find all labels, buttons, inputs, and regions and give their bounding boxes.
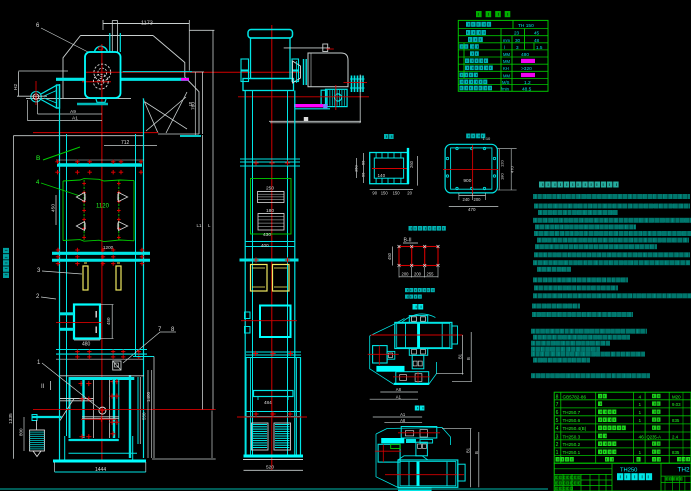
svg-text:120: 120 (500, 160, 505, 167)
svg-text:140: 140 (378, 173, 386, 178)
svg-text:484: 484 (264, 400, 272, 405)
svg-text:B: B (474, 451, 479, 454)
svg-text:480: 480 (521, 52, 529, 58)
svg-text:M20: M20 (672, 395, 681, 400)
svg-text:A8: A8 (396, 387, 402, 392)
svg-text:4: 4 (639, 395, 642, 401)
svg-text:TH250.1: TH250.1 (563, 450, 581, 455)
svg-text:180: 180 (266, 208, 274, 214)
svg-text:2.4: 2.4 (672, 434, 679, 439)
svg-text:800: 800 (19, 428, 24, 436)
svg-text:A1: A1 (72, 116, 78, 122)
svg-text:200: 200 (402, 272, 410, 277)
svg-text:1: 1 (639, 410, 642, 416)
svg-text:55: 55 (361, 160, 366, 165)
svg-text:550: 550 (142, 412, 147, 420)
svg-text:48.5: 48.5 (522, 86, 532, 92)
svg-text:400: 400 (261, 243, 269, 248)
svg-text:150: 150 (381, 191, 389, 196)
svg-text:mm: mm (503, 38, 510, 43)
svg-text:II: II (41, 384, 45, 390)
svg-text:B1: B1 (465, 447, 470, 453)
svg-text:150: 150 (393, 191, 401, 196)
svg-text:1: 1 (639, 450, 642, 456)
svg-text:470: 470 (468, 207, 476, 212)
svg-text:B1: B1 (458, 353, 463, 359)
svg-text:900: 900 (463, 178, 471, 184)
svg-text:/min: /min (501, 86, 510, 91)
svg-text:GB5782-86: GB5782-86 (563, 395, 587, 400)
svg-text:3: 3 (556, 434, 559, 440)
svg-text:Q235-A: Q235-A (647, 434, 662, 439)
svg-text:5: 5 (189, 102, 192, 108)
svg-text:L1: L1 (197, 223, 203, 228)
svg-text:TH250.6: TH250.6 (563, 418, 581, 423)
svg-text:835: 835 (672, 418, 680, 423)
svg-text:470: 470 (510, 166, 515, 173)
svg-text:1:10: 1:10 (483, 136, 492, 141)
svg-text:>320: >320 (521, 66, 532, 72)
svg-text:5: 5 (556, 418, 559, 424)
svg-text:1444: 1444 (95, 467, 106, 473)
svg-text:180: 180 (500, 173, 505, 180)
svg-text:835: 835 (672, 450, 680, 455)
svg-text:4: 4 (556, 426, 559, 432)
svg-text:TH250.2: TH250.2 (563, 442, 581, 447)
svg-text:MM: MM (503, 59, 510, 64)
svg-text:1: 1 (556, 450, 559, 456)
svg-text:1173: 1173 (141, 21, 153, 27)
svg-text:450: 450 (387, 252, 392, 260)
svg-text:TH250.3: TH250.3 (563, 434, 581, 439)
svg-text:450: 450 (106, 317, 111, 325)
svg-text:A1: A1 (396, 394, 402, 399)
svg-text:A8: A8 (400, 418, 406, 423)
svg-text:TH2: TH2 (678, 467, 691, 474)
svg-text:30: 30 (515, 38, 521, 43)
svg-text:H2: H2 (13, 84, 19, 90)
svg-text:1400: 1400 (146, 391, 151, 402)
svg-text:B: B (466, 357, 471, 360)
svg-text:1120: 1120 (96, 204, 110, 210)
svg-text:1: 1 (639, 418, 642, 424)
svg-text:A9: A9 (70, 109, 76, 115)
svg-text:1335: 1335 (8, 413, 14, 424)
svg-text:l: l (504, 45, 505, 50)
svg-text:450: 450 (51, 204, 57, 212)
svg-text:430: 430 (263, 232, 271, 238)
svg-text:B: B (36, 155, 40, 162)
svg-text:250: 250 (266, 186, 274, 192)
svg-text:6: 6 (556, 410, 559, 416)
svg-text:MM: MM (503, 73, 510, 78)
svg-text:M/S: M/S (502, 80, 510, 85)
svg-text:200: 200 (414, 272, 422, 277)
svg-text:46: 46 (639, 434, 645, 440)
svg-text:TH250.7: TH250.7 (563, 410, 581, 415)
svg-text:8: 8 (556, 395, 559, 401)
svg-text:480: 480 (82, 342, 91, 348)
svg-text:48: 48 (534, 38, 540, 43)
svg-text:A1: A1 (400, 412, 406, 417)
svg-text:3: 3 (516, 45, 519, 50)
svg-text:TH250.4(B): TH250.4(B) (563, 426, 587, 431)
svg-text:1.2: 1.2 (524, 80, 531, 86)
svg-text:240: 240 (463, 197, 471, 202)
svg-text:7: 7 (556, 402, 559, 408)
svg-text:520: 520 (266, 465, 274, 471)
svg-text:1200: 1200 (103, 245, 114, 250)
svg-text:9.03: 9.03 (672, 402, 681, 407)
svg-text:23: 23 (514, 31, 520, 36)
svg-text:55: 55 (361, 172, 366, 177)
svg-text:260: 260 (409, 160, 414, 168)
svg-text:255: 255 (427, 272, 435, 277)
svg-text:350: 350 (354, 165, 359, 172)
svg-text:712: 712 (121, 140, 130, 146)
svg-text:KH: KH (503, 66, 509, 71)
svg-text:1.5: 1.5 (536, 45, 543, 50)
svg-text:45: 45 (534, 31, 540, 36)
svg-text:TH250: TH250 (620, 468, 637, 474)
svg-text:TH 150: TH 150 (518, 23, 534, 29)
svg-text:20: 20 (407, 191, 412, 196)
svg-text:1: 1 (639, 402, 642, 408)
svg-text:200: 200 (474, 197, 482, 202)
svg-text:2: 2 (556, 442, 559, 448)
svg-text:MM: MM (503, 52, 510, 57)
svg-text:90: 90 (372, 191, 377, 196)
